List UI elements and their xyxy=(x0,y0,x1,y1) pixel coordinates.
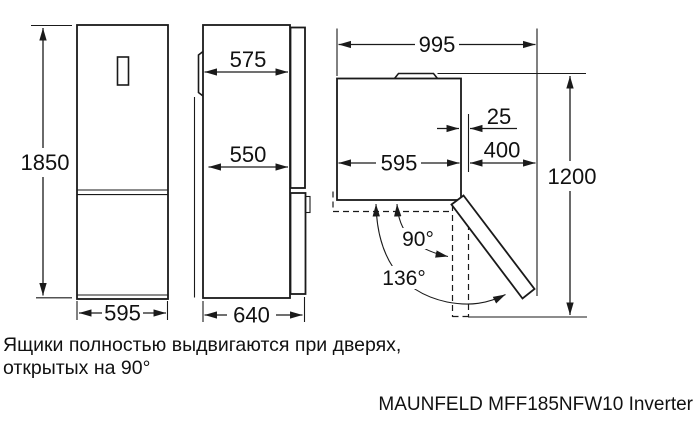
side-door-strip-lower xyxy=(291,193,306,294)
front-view-outline xyxy=(77,25,168,299)
dim-top-995: 995 xyxy=(339,32,536,57)
dim-label-1850: 1850 xyxy=(21,150,70,175)
note-line-1: Ящики полностью выдвигаются при дверях, xyxy=(3,334,401,357)
front-view xyxy=(77,25,168,299)
dim-front-width: 595 xyxy=(77,301,168,326)
dim-top-1200: 1200 xyxy=(547,76,597,315)
dim-label-550: 550 xyxy=(230,142,267,167)
dim-label-595-top: 595 xyxy=(381,151,418,176)
dim-label-1200: 1200 xyxy=(548,164,597,189)
dim-label-575: 575 xyxy=(230,47,267,72)
angle-label-90: 90° xyxy=(402,228,434,251)
angle-label-136: 136° xyxy=(382,267,425,290)
refrigerator-dimension-diagram: 1850 595 575 550 640 xyxy=(0,0,700,423)
dim-label-995: 995 xyxy=(419,32,456,57)
dim-label-640: 640 xyxy=(233,303,270,328)
door-open-136 xyxy=(452,196,535,299)
dim-label-400: 400 xyxy=(484,138,521,163)
note-line-2: открытых на 90° xyxy=(3,357,401,380)
dim-label-595-front: 595 xyxy=(104,301,141,326)
dim-top-400: 400 xyxy=(470,138,536,164)
model-label: MAUNFELD MFF185NFW10 Inverter xyxy=(378,394,693,416)
dim-label-25: 25 xyxy=(487,104,511,129)
door-swing-arcs: 90° 136° xyxy=(376,204,506,304)
side-door-strip-upper xyxy=(291,28,306,189)
top-view-body xyxy=(337,79,461,201)
note-text: Ящики полностью выдвигаются при дверях, … xyxy=(3,334,401,380)
dim-side-640: 640 xyxy=(203,297,305,328)
dim-front-height: 1850 xyxy=(21,26,72,298)
